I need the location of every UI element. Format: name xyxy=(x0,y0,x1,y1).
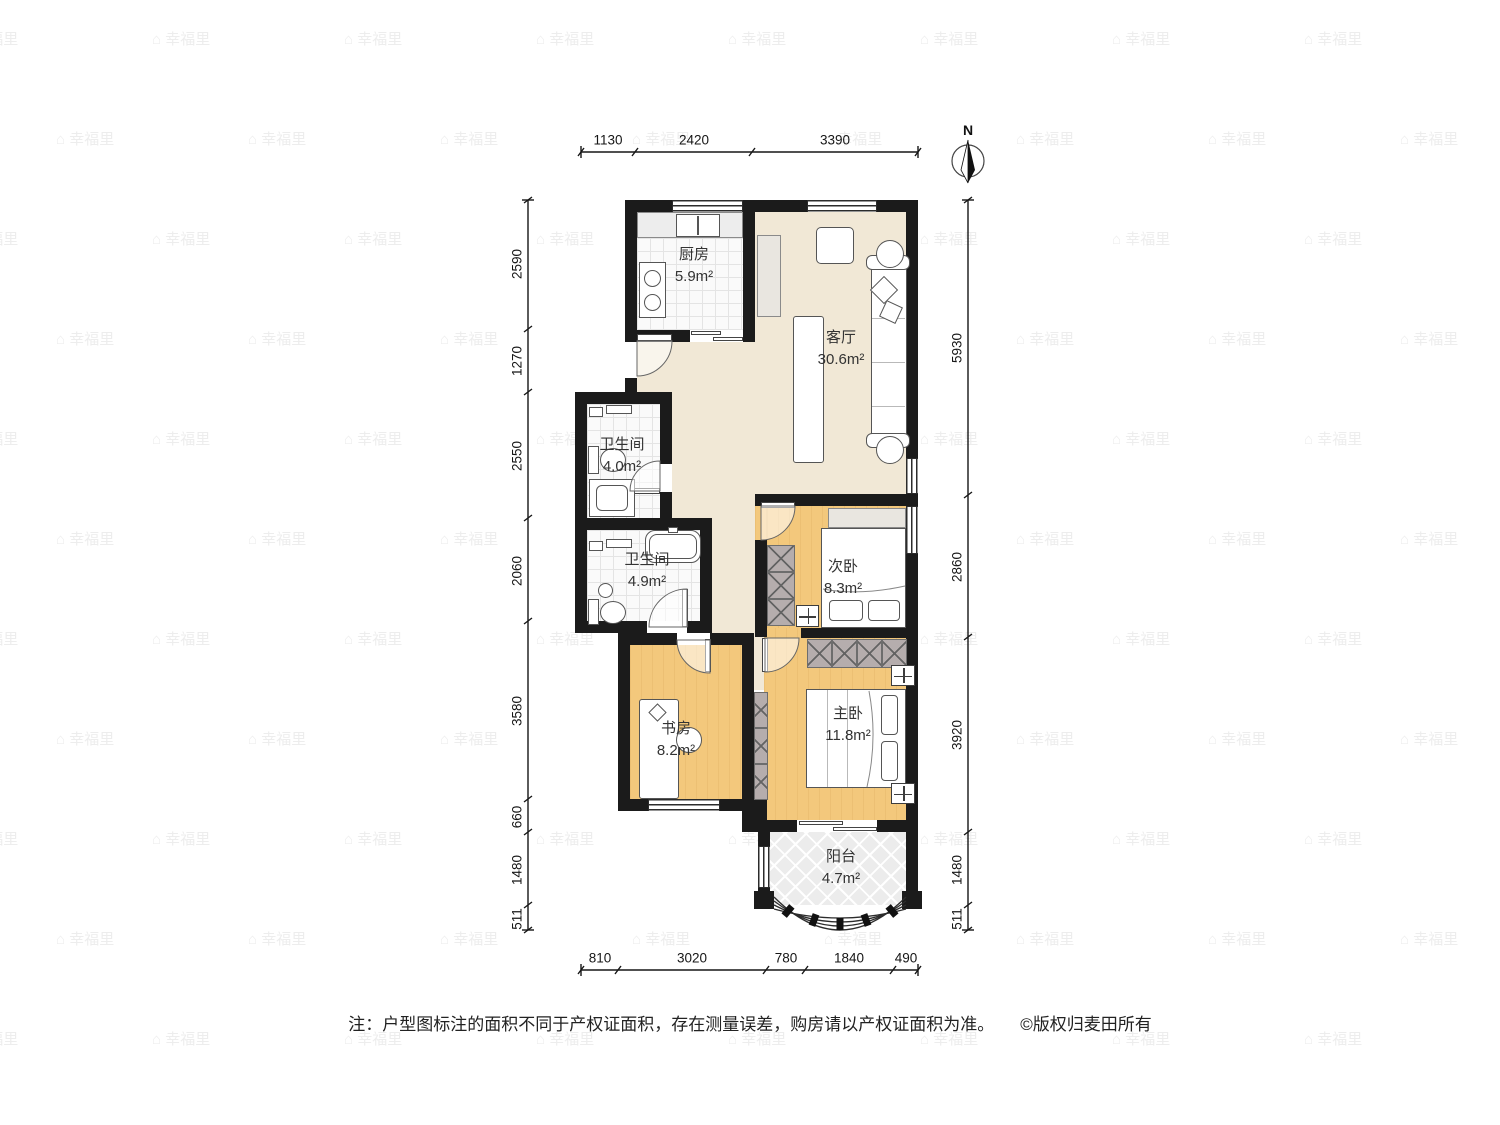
dim-left-1: 2590 xyxy=(510,249,525,279)
dim-top-1: 1130 xyxy=(593,133,622,148)
room-area: 11.8m² xyxy=(825,727,871,744)
room-label-kitchen: 厨房 5.9m² xyxy=(675,244,713,288)
dim-right-5: 511 xyxy=(950,908,965,930)
room-name: 主卧 xyxy=(833,705,863,722)
dim-left-4: 2060 xyxy=(510,556,525,586)
north-compass-icon xyxy=(952,140,984,183)
room-name: 阳台 xyxy=(826,848,856,865)
dim-left-3: 2550 xyxy=(510,441,525,471)
dim-bottom-4: 1840 xyxy=(834,951,864,966)
dim-right-2: 2860 xyxy=(950,552,965,582)
dim-right-1: 5930 xyxy=(950,333,965,363)
room-label-bedroom2: 次卧 8.3m² xyxy=(824,556,862,600)
room-area: 4.0m² xyxy=(603,458,641,475)
floorplan-page: ⌂ 幸福里⌂ 幸福里⌂ 幸福里⌂ 幸福里⌂ 幸福里⌂ 幸福里⌂ 幸福里⌂ 幸福里… xyxy=(0,0,1500,1125)
balcony-bay-window xyxy=(774,897,906,930)
room-area: 4.9m² xyxy=(628,573,666,590)
dim-bottom-3: 780 xyxy=(775,951,798,966)
room-label-study: 书房 8.2m² xyxy=(657,718,695,762)
dim-right-3: 3920 xyxy=(950,720,965,750)
room-area: 8.2m² xyxy=(657,742,695,759)
door-swing-arcs xyxy=(630,341,799,673)
dim-left-6: 660 xyxy=(510,806,525,829)
room-label-master: 主卧 11.8m² xyxy=(825,703,871,747)
room-label-bath1: 卫生间 4.0m² xyxy=(599,434,644,478)
master-door-arc xyxy=(765,638,799,672)
room-area: 8.3m² xyxy=(824,580,862,597)
room-name: 卫生间 xyxy=(599,436,644,453)
room-name: 卫生间 xyxy=(624,551,669,568)
north-label: N xyxy=(963,122,973,138)
dim-left-7: 1480 xyxy=(510,855,525,885)
room-name: 次卧 xyxy=(828,558,858,575)
dim-left-2: 1270 xyxy=(510,346,525,376)
plan-annotations xyxy=(0,0,1500,1125)
dim-left-8: 511 xyxy=(510,908,525,930)
room-name: 书房 xyxy=(661,720,691,737)
dim-bottom-2: 3020 xyxy=(677,951,707,966)
room-label-bath2: 卫生间 4.9m² xyxy=(624,549,669,593)
dim-top-2: 2420 xyxy=(679,133,709,148)
bath2-door-arc xyxy=(649,589,687,627)
room-name: 客厅 xyxy=(826,329,856,346)
room-name: 厨房 xyxy=(679,246,709,263)
bedroom2-door-arc xyxy=(761,506,795,540)
room-label-living: 客厅 30.6m² xyxy=(818,327,865,371)
dim-right-4: 1480 xyxy=(950,855,965,885)
study-door-arc xyxy=(677,640,710,673)
copyright-text: ©版权归麦田所有 xyxy=(1020,1010,1152,1035)
room-area: 4.7m² xyxy=(822,870,860,887)
dim-top-3: 3390 xyxy=(820,133,850,148)
room-area: 30.6m² xyxy=(818,351,865,368)
entry-door-arc xyxy=(637,341,672,376)
room-area: 5.9m² xyxy=(675,268,713,285)
dim-left-5: 3580 xyxy=(510,696,525,726)
dimension-lines xyxy=(522,146,974,976)
footnote-text: 注：户型图标注的面积不同于产权证面积，存在测量误差，购房请以产权证面积为准。 xyxy=(348,1010,994,1035)
footnote: 注：户型图标注的面积不同于产权证面积，存在测量误差，购房请以产权证面积为准。 ©… xyxy=(0,1010,1500,1035)
room-label-balcony: 阳台 4.7m² xyxy=(822,846,860,890)
dim-bottom-1: 810 xyxy=(589,951,612,966)
blanket-fold-lines xyxy=(823,586,905,787)
dim-bottom-5: 490 xyxy=(895,951,918,966)
